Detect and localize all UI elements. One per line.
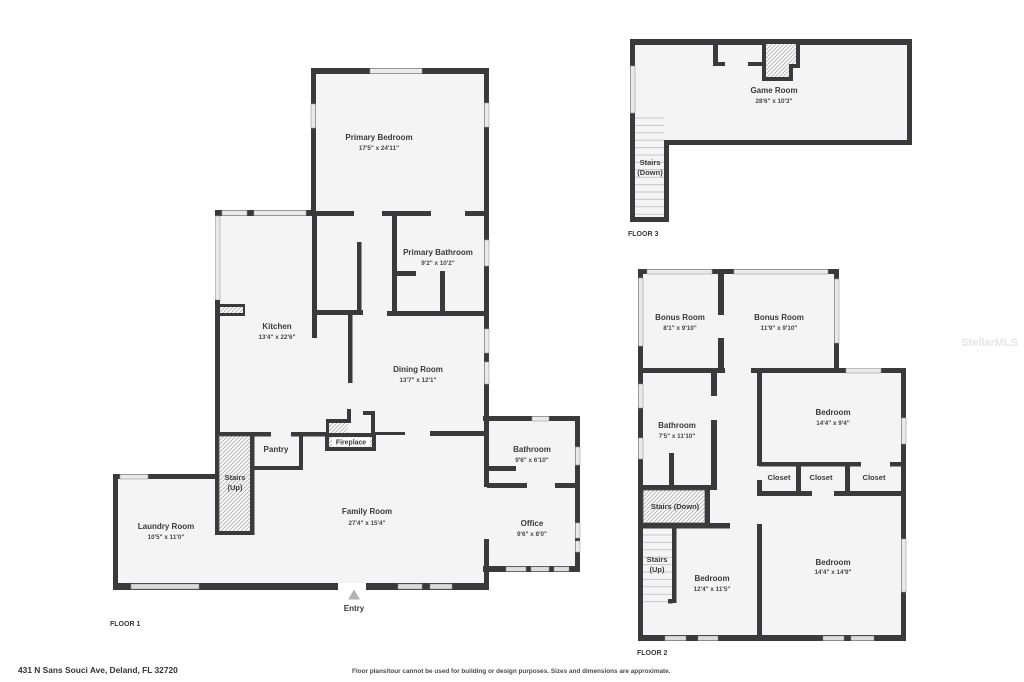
svg-text:Bonus Room: Bonus Room xyxy=(655,313,705,322)
svg-text:13'4" x 22'6": 13'4" x 22'6" xyxy=(259,334,296,341)
svg-text:FLOOR 2: FLOOR 2 xyxy=(637,650,667,657)
svg-text:Pantry: Pantry xyxy=(264,445,289,454)
svg-text:Closet: Closet xyxy=(768,473,791,482)
svg-text:Closet: Closet xyxy=(810,473,833,482)
svg-text:Bathroom: Bathroom xyxy=(658,421,696,430)
svg-text:431 N Sans Souci Ave, Deland,: 431 N Sans Souci Ave, Deland, FL 32720 xyxy=(18,665,178,675)
svg-text:(Down): (Down) xyxy=(637,168,663,177)
svg-text:Stairs: Stairs xyxy=(640,158,661,167)
svg-text:Primary Bedroom: Primary Bedroom xyxy=(345,133,412,142)
svg-text:Family Room: Family Room xyxy=(342,507,392,516)
svg-text:(Up): (Up) xyxy=(228,483,243,492)
svg-text:Game Room: Game Room xyxy=(750,86,797,95)
svg-text:9'2" x 10'2": 9'2" x 10'2" xyxy=(421,260,454,267)
svg-text:9'6" x 8'0": 9'6" x 8'0" xyxy=(517,531,547,538)
svg-text:27'4" x 15'4": 27'4" x 15'4" xyxy=(349,520,386,527)
svg-text:13'7" x 12'1": 13'7" x 12'1" xyxy=(400,377,437,384)
svg-text:Bedroom: Bedroom xyxy=(815,408,850,417)
svg-text:Entry: Entry xyxy=(344,604,365,613)
svg-text:Bonus Room: Bonus Room xyxy=(754,313,804,322)
svg-text:FLOOR 1: FLOOR 1 xyxy=(110,621,140,628)
svg-text:Bedroom: Bedroom xyxy=(694,574,729,583)
svg-text:Office: Office xyxy=(521,519,544,528)
svg-text:Stairs (Down): Stairs (Down) xyxy=(651,502,700,511)
svg-text:10'5" x 11'0": 10'5" x 11'0" xyxy=(148,534,185,541)
svg-text:Fireplace: Fireplace xyxy=(336,440,366,447)
svg-text:14'4" x 14'9": 14'4" x 14'9" xyxy=(815,569,852,576)
svg-text:9'6" x 6'10": 9'6" x 6'10" xyxy=(515,457,548,464)
svg-text:Laundry Room: Laundry Room xyxy=(138,522,194,531)
svg-text:7'5" x 11'10": 7'5" x 11'10" xyxy=(659,433,696,440)
svg-text:Bedroom: Bedroom xyxy=(815,558,850,567)
svg-text:Dining Room: Dining Room xyxy=(393,365,443,374)
svg-text:Kitchen: Kitchen xyxy=(262,322,291,331)
svg-text:28'6" x 10'3": 28'6" x 10'3" xyxy=(756,98,793,105)
svg-text:Stairs: Stairs xyxy=(647,555,668,564)
svg-text:(Up): (Up) xyxy=(650,565,665,574)
svg-text:Primary Bathroom: Primary Bathroom xyxy=(403,248,473,257)
svg-text:Stairs: Stairs xyxy=(225,473,246,482)
svg-text:FLOOR 3: FLOOR 3 xyxy=(628,231,658,238)
svg-text:Floor plans/tour cannot be use: Floor plans/tour cannot be used for buil… xyxy=(352,668,671,675)
svg-text:Closet: Closet xyxy=(863,473,886,482)
svg-text:11'9" x 9'10": 11'9" x 9'10" xyxy=(761,325,798,332)
svg-text:8'1" x 9'10": 8'1" x 9'10" xyxy=(663,325,696,332)
svg-text:14'4" x 9'4": 14'4" x 9'4" xyxy=(816,420,849,427)
svg-text:17'5" x 24'11": 17'5" x 24'11" xyxy=(359,145,399,152)
svg-text:12'4" x 11'5": 12'4" x 11'5" xyxy=(694,586,731,593)
svg-text:StellarMLS: StellarMLS xyxy=(961,337,1018,349)
svg-text:Bathroom: Bathroom xyxy=(513,445,551,454)
